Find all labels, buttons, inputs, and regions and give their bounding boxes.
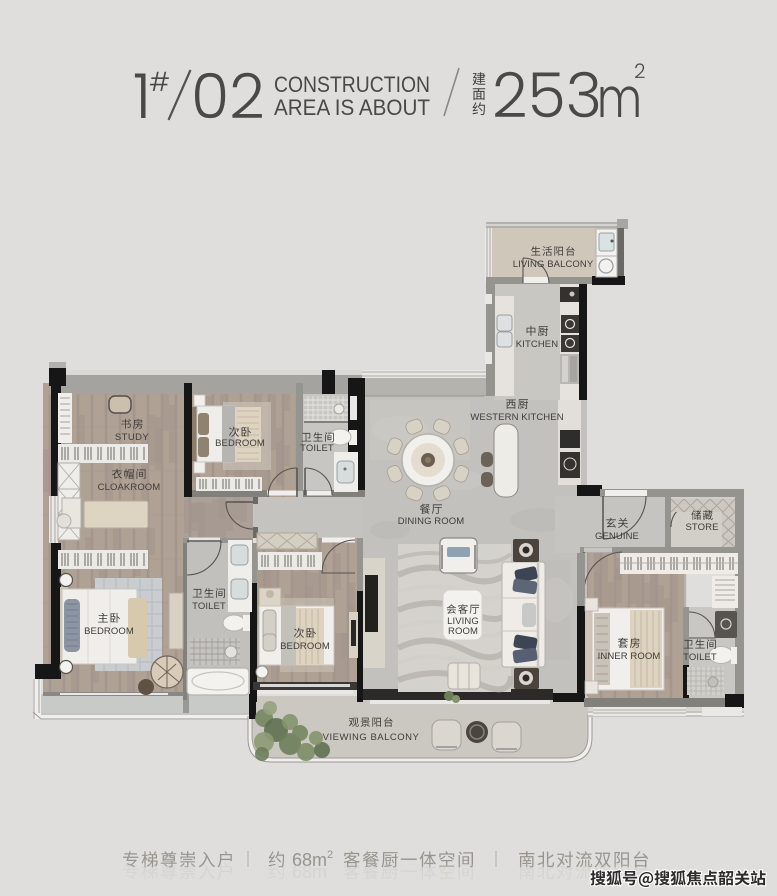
svg-text:TOILET: TOILET xyxy=(683,652,717,663)
svg-text:TOILET: TOILET xyxy=(192,601,226,612)
svg-text:KITCHEN: KITCHEN xyxy=(516,339,558,350)
svg-text:DINING ROOM: DINING ROOM xyxy=(398,516,465,527)
svg-text:LIVING BALCONY: LIVING BALCONY xyxy=(513,259,594,270)
svg-text:68m: 68m xyxy=(292,862,327,882)
svg-text:ROOM: ROOM xyxy=(448,626,478,637)
svg-text:AREA IS ABOUT: AREA IS ABOUT xyxy=(274,95,430,120)
svg-text:VIEWING BALCONY: VIEWING BALCONY xyxy=(323,732,420,743)
svg-text:2: 2 xyxy=(327,849,333,861)
svg-text:BEDROOM: BEDROOM xyxy=(84,626,134,637)
svg-text:INNER ROOM: INNER ROOM xyxy=(598,651,661,662)
svg-text:BEDROOM: BEDROOM xyxy=(280,641,330,652)
svg-text:STUDY: STUDY xyxy=(115,432,149,443)
svg-text:GENUINE: GENUINE xyxy=(595,531,639,542)
svg-text:WESTERN KITCHEN: WESTERN KITCHEN xyxy=(470,412,563,423)
svg-text:STORE: STORE xyxy=(685,522,718,533)
svg-text:CONSTRUCTION: CONSTRUCTION xyxy=(274,72,430,97)
svg-text:CLOAKROOM: CLOAKROOM xyxy=(98,482,161,493)
svg-text:BEDROOM: BEDROOM xyxy=(215,438,265,449)
svg-text:TOILET: TOILET xyxy=(300,443,334,454)
